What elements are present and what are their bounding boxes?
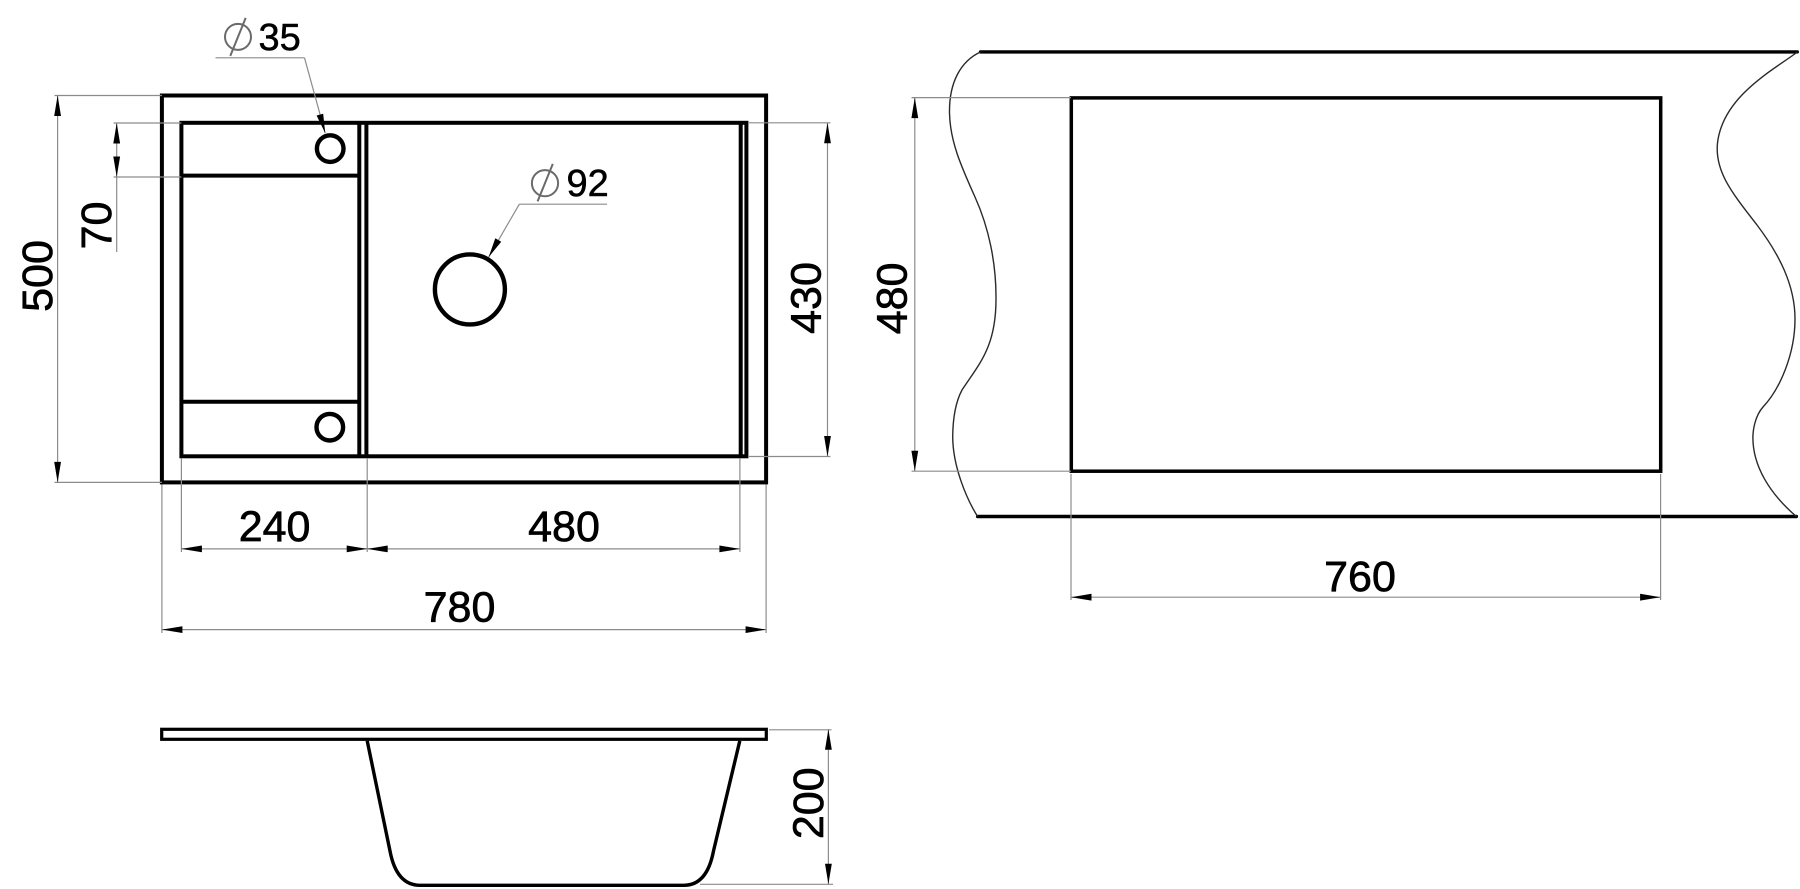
svg-text:480: 480 <box>528 503 600 551</box>
svg-text:92: 92 <box>567 163 609 205</box>
svg-text:240: 240 <box>239 503 311 551</box>
svg-text:780: 780 <box>424 584 496 632</box>
svg-text:200: 200 <box>785 767 833 839</box>
svg-text:70: 70 <box>73 202 121 250</box>
svg-text:760: 760 <box>1324 553 1396 601</box>
svg-text:500: 500 <box>14 240 62 312</box>
svg-text:430: 430 <box>782 262 830 334</box>
svg-text:480: 480 <box>868 263 916 335</box>
svg-text:35: 35 <box>259 17 301 59</box>
